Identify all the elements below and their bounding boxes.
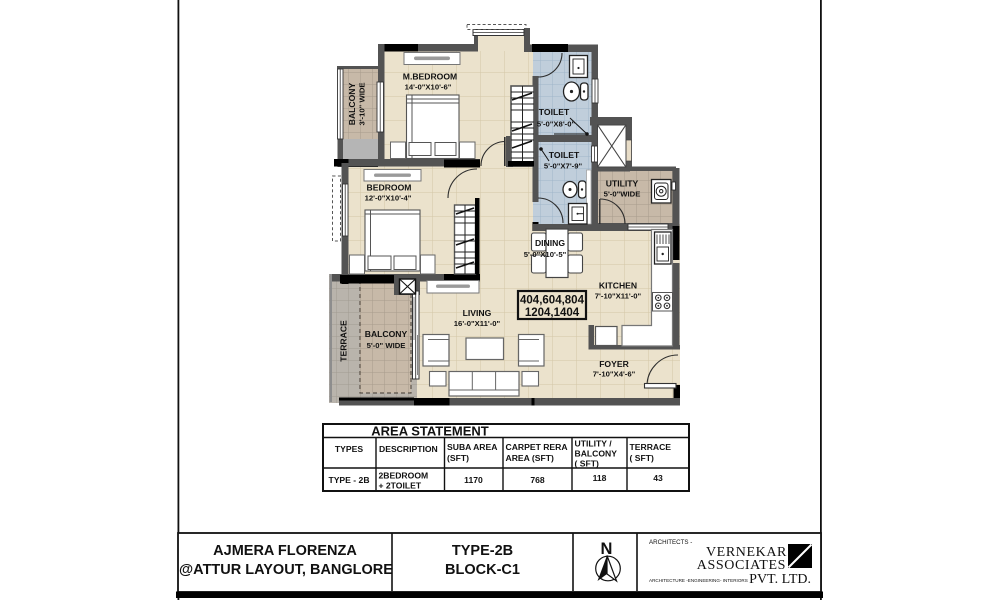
- svg-text:@ATTUR LAYOUT, BANGLORE: @ATTUR LAYOUT, BANGLORE: [179, 562, 393, 578]
- svg-text:12'-0"X10'-4": 12'-0"X10'-4": [365, 194, 412, 203]
- svg-text:CARPET RERA: CARPET RERA: [506, 442, 568, 452]
- svg-text:768: 768: [530, 475, 545, 485]
- svg-text:TYPE-2B: TYPE-2B: [452, 543, 513, 559]
- svg-text:DINING: DINING: [535, 238, 565, 248]
- svg-text:( SFT): ( SFT): [630, 453, 654, 463]
- svg-text:TYPES: TYPES: [335, 444, 363, 454]
- svg-text:16'-0"X11'-0": 16'-0"X11'-0": [454, 319, 501, 328]
- svg-text:BALCONY: BALCONY: [347, 82, 357, 125]
- svg-text:LIVING: LIVING: [463, 308, 492, 318]
- svg-text:404,604,804: 404,604,804: [520, 295, 585, 307]
- svg-text:SUBA AREA: SUBA AREA: [447, 442, 497, 452]
- svg-text:5'-0"X7'-9": 5'-0"X7'-9": [544, 162, 583, 171]
- svg-text:BEDROOM: BEDROOM: [367, 183, 412, 193]
- svg-text:ARCHITECTS -: ARCHITECTS -: [649, 539, 692, 546]
- svg-text:AREA STATEMENT: AREA STATEMENT: [371, 424, 489, 439]
- svg-text:BALCONY: BALCONY: [365, 329, 408, 339]
- svg-text:1170: 1170: [464, 475, 483, 485]
- svg-text:AREA (SFT): AREA (SFT): [506, 453, 555, 463]
- svg-text:2BEDROOM: 2BEDROOM: [379, 471, 429, 481]
- svg-text:TOILET: TOILET: [549, 150, 580, 160]
- svg-text:(SFT): (SFT): [447, 453, 469, 463]
- svg-text:118: 118: [593, 473, 607, 483]
- svg-text:KITCHEN: KITCHEN: [599, 281, 637, 291]
- svg-text:TERRACE: TERRACE: [339, 320, 349, 362]
- svg-text:BLOCK-C1: BLOCK-C1: [445, 562, 520, 578]
- svg-text:BALCONY: BALCONY: [575, 449, 618, 459]
- svg-text:M.BEDROOM: M.BEDROOM: [403, 72, 457, 82]
- svg-text:ASSOCIATES: ASSOCIATES: [697, 558, 786, 573]
- svg-text:PVT. LTD.: PVT. LTD.: [749, 572, 811, 587]
- svg-text:5'-0" WIDE: 5'-0" WIDE: [367, 341, 406, 350]
- svg-text:5'-0"X8'-0": 5'-0"X8'-0": [537, 120, 576, 129]
- svg-text:UTILITY /: UTILITY /: [575, 439, 613, 449]
- svg-text:UTILITY: UTILITY: [606, 179, 639, 189]
- svg-text:TYPE - 2B: TYPE - 2B: [328, 475, 369, 485]
- svg-text:1204,1404: 1204,1404: [525, 307, 580, 319]
- svg-text:7'-10"X4'-6": 7'-10"X4'-6": [593, 370, 636, 379]
- svg-text:14'-0"X10'-6": 14'-0"X10'-6": [405, 83, 452, 92]
- svg-text:+ 2TOILET: + 2TOILET: [379, 481, 422, 491]
- svg-text:5'-0"X10'-5": 5'-0"X10'-5": [524, 250, 567, 259]
- svg-text:TERRACE: TERRACE: [630, 442, 672, 452]
- svg-text:7'-10"X11'-0": 7'-10"X11'-0": [595, 292, 642, 301]
- svg-text:ARCHITECTURE -ENGINEERING- INT: ARCHITECTURE -ENGINEERING- INTERIORS: [649, 578, 748, 583]
- svg-text:3'-10" WIDE: 3'-10" WIDE: [358, 82, 367, 125]
- svg-text:AJMERA FLORENZA: AJMERA FLORENZA: [213, 543, 357, 559]
- svg-text:FOYER: FOYER: [599, 359, 629, 369]
- svg-text:DESCRIPTION: DESCRIPTION: [379, 444, 438, 454]
- svg-text:( SFT): ( SFT): [575, 459, 599, 469]
- svg-text:43: 43: [653, 473, 663, 483]
- svg-text:5'-0"WIDE: 5'-0"WIDE: [604, 190, 641, 199]
- svg-text:TOILET: TOILET: [539, 107, 570, 117]
- svg-text:N: N: [601, 540, 613, 558]
